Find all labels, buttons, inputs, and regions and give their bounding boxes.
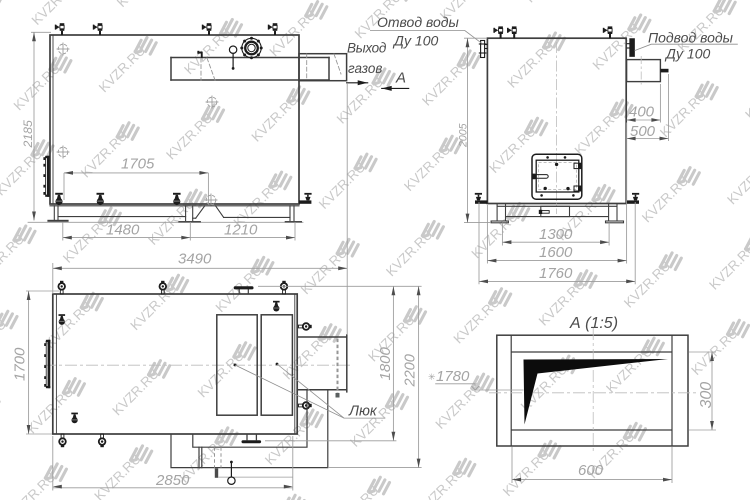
- svg-text:газов: газов: [348, 61, 382, 76]
- svg-text:KVZR.RU: KVZR.RU: [114, 0, 167, 10]
- svg-text:1480: 1480: [106, 222, 140, 239]
- svg-text:Отвод воды: Отвод воды: [377, 14, 459, 30]
- svg-text:500: 500: [630, 123, 656, 140]
- svg-text:2185: 2185: [21, 120, 35, 149]
- svg-text:✳: ✳: [428, 372, 436, 382]
- svg-text:Выход: Выход: [347, 41, 387, 56]
- svg-text:Подвод воды: Подвод воды: [648, 30, 734, 46]
- svg-text:2005: 2005: [458, 123, 470, 148]
- svg-text:400: 400: [629, 104, 655, 121]
- svg-text:А: А: [395, 70, 406, 87]
- svg-text:1705: 1705: [121, 156, 155, 173]
- svg-text:1760: 1760: [539, 265, 573, 282]
- svg-text:1700: 1700: [12, 347, 29, 381]
- svg-text:KVZR.RU: KVZR.RU: [724, 155, 750, 208]
- svg-text:KVZR.RU: KVZR.RU: [742, 70, 750, 123]
- svg-text:1600: 1600: [539, 244, 573, 261]
- svg-text:Ду 100: Ду 100: [392, 33, 438, 49]
- svg-text:600: 600: [578, 462, 604, 479]
- svg-text:KVZR.RU: KVZR.RU: [706, 240, 750, 293]
- svg-text:1800: 1800: [377, 346, 394, 380]
- svg-text:3490: 3490: [178, 251, 212, 268]
- svg-text:KVZR.RU: KVZR.RU: [29, 0, 82, 28]
- svg-text:Люк: Люк: [348, 404, 378, 420]
- svg-text:1300: 1300: [539, 226, 573, 243]
- svg-text:2200: 2200: [403, 354, 419, 387]
- svg-text:KVZR.RU: KVZR.RU: [522, 0, 575, 5]
- svg-text:Ду 100: Ду 100: [664, 46, 710, 62]
- svg-text:1210: 1210: [224, 222, 258, 239]
- svg-text:300: 300: [698, 382, 715, 409]
- svg-text:2850: 2850: [155, 472, 190, 489]
- svg-text:1780: 1780: [436, 368, 470, 385]
